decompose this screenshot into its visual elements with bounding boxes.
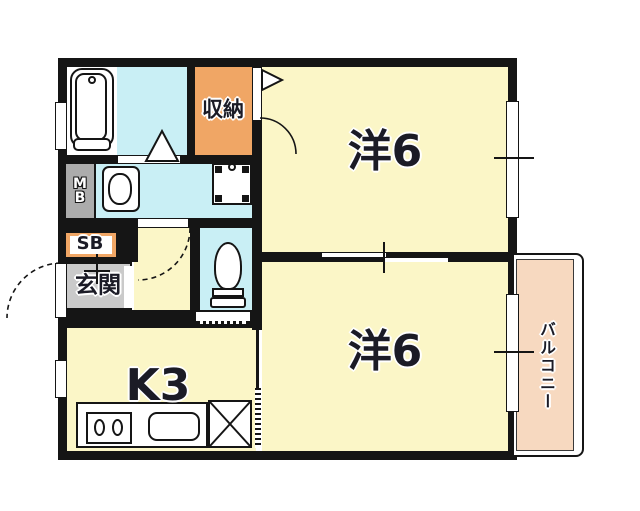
hall-door-arc — [138, 228, 190, 280]
front-door-arc — [7, 263, 61, 318]
floor-plan: バルコニー MB SB 玄関 — [0, 0, 640, 511]
room-door-arc — [260, 118, 296, 154]
closet-door-triangle — [262, 70, 282, 90]
plan-annotations — [0, 0, 640, 511]
bath-door-triangle — [146, 131, 178, 161]
